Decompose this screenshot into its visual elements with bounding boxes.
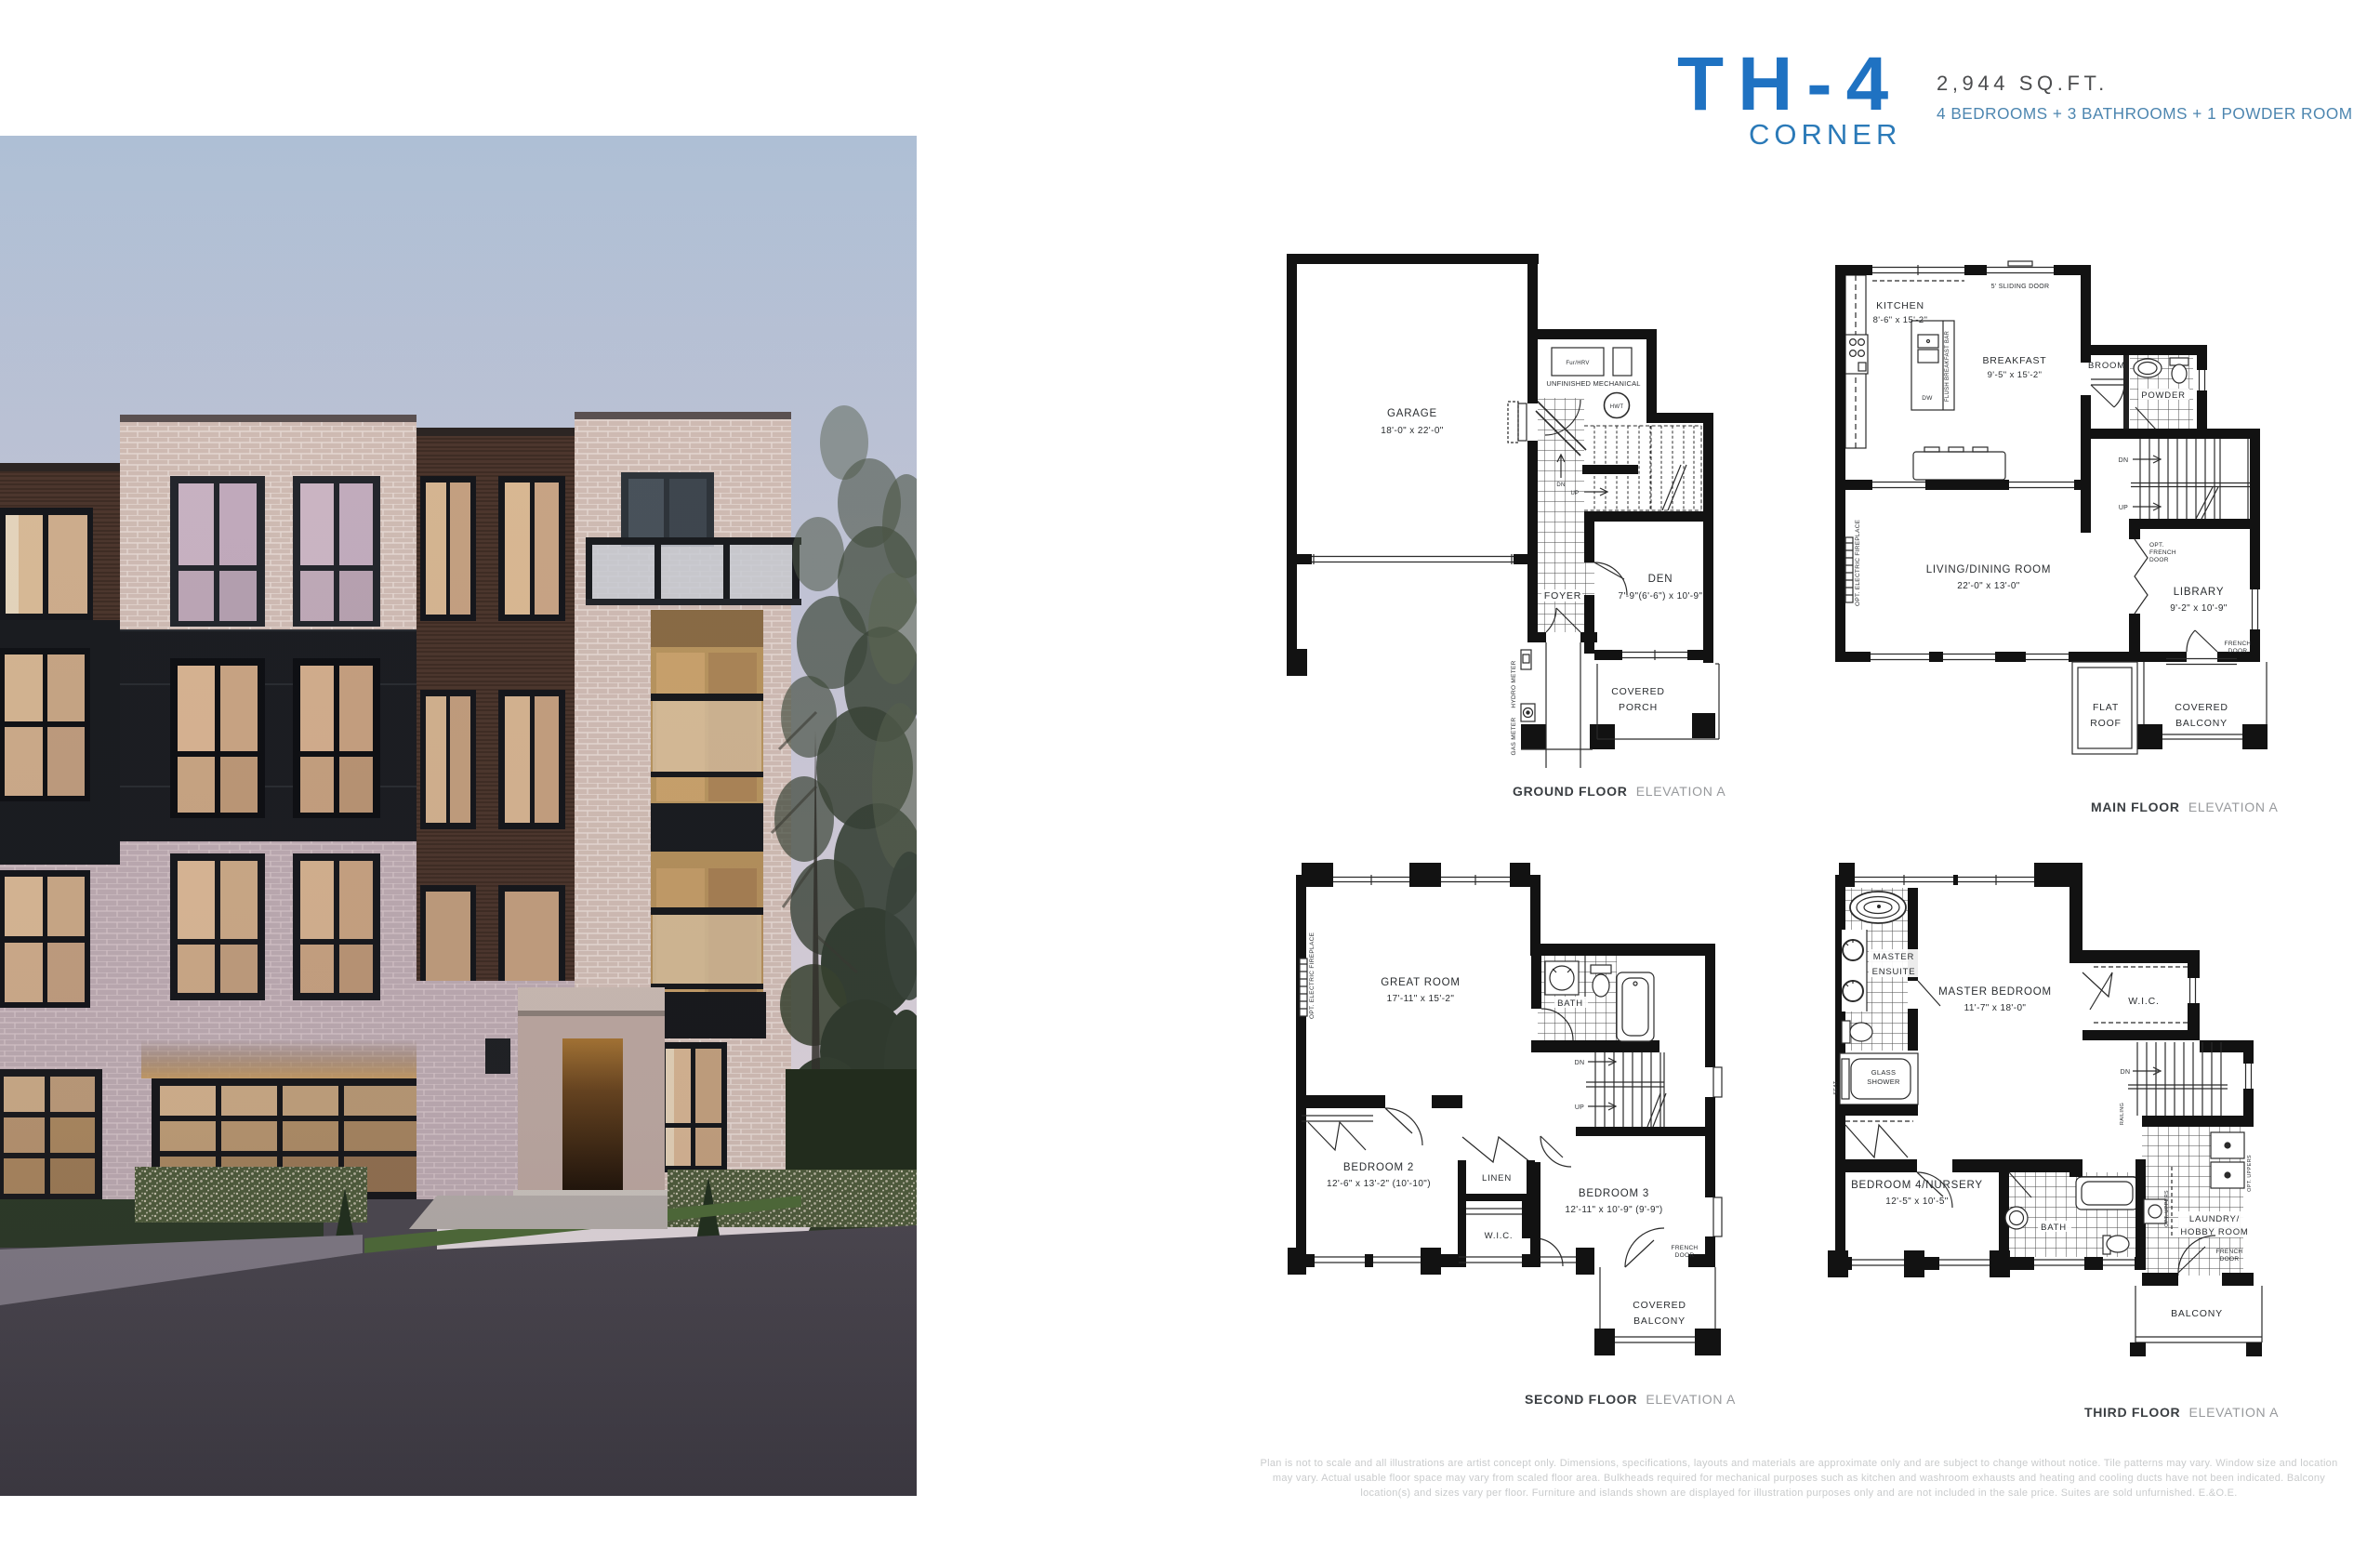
svg-text:MASTER: MASTER [1873, 952, 1914, 962]
svg-text:BALCONY: BALCONY [2175, 718, 2228, 729]
svg-text:BROOM: BROOM [2088, 361, 2125, 371]
svg-text:DOOR: DOOR [2228, 648, 2248, 654]
svg-text:DOOR: DOOR [1675, 1252, 1695, 1259]
svg-text:FRENCH: FRENCH [2225, 641, 2252, 647]
svg-text:OPT. UPPERS: OPT. UPPERS [2164, 1190, 2170, 1227]
svg-text:UP: UP [2119, 505, 2128, 511]
svg-text:UP: UP [1571, 491, 1580, 496]
svg-text:12'-11" x 10'-9" (9'-9"): 12'-11" x 10'-9" (9'-9") [1565, 1205, 1662, 1215]
svg-text:COVERED: COVERED [1633, 1300, 1686, 1311]
svg-text:GAS METER: GAS METER [1511, 718, 1517, 756]
svg-text:FLAT: FLAT [2093, 702, 2119, 713]
svg-text:DN: DN [1575, 1060, 1585, 1066]
svg-text:18'-0" x 22'-0": 18'-0" x 22'-0" [1381, 426, 1444, 436]
svg-text:DN: DN [1556, 483, 1565, 488]
svg-text:5' SLIDING DOOR: 5' SLIDING DOOR [1991, 284, 2050, 290]
svg-text:DEN: DEN [1648, 574, 1673, 585]
svg-text:DOOR: DOOR [2220, 1256, 2240, 1263]
svg-text:LIVING/DINING ROOM: LIVING/DINING ROOM [1926, 564, 2052, 575]
svg-text:FRENCH: FRENCH [2216, 1249, 2243, 1255]
svg-text:W.I.C.: W.I.C. [1485, 1231, 1514, 1241]
svg-text:ROOF: ROOF [2090, 718, 2122, 729]
svg-text:12'-5" x 10'-5": 12'-5" x 10'-5" [1885, 1197, 1949, 1207]
svg-text:PORCH: PORCH [1619, 702, 1658, 713]
svg-text:11'-7" x 18'-0": 11'-7" x 18'-0" [1964, 1003, 2027, 1013]
svg-text:9'-5" x 15'-2": 9'-5" x 15'-2" [1988, 370, 2043, 380]
svg-text:LINEN: LINEN [1482, 1173, 1512, 1183]
svg-text:UP: UP [1575, 1104, 1584, 1111]
svg-text:RAILING: RAILING [2120, 1103, 2125, 1125]
svg-text:COVERED: COVERED [1611, 686, 1665, 697]
svg-text:FRENCH: FRENCH [1672, 1245, 1699, 1251]
svg-text:7'-9"(6'-6") x 10'-9": 7'-9"(6'-6") x 10'-9" [1619, 591, 1703, 602]
svg-text:OPT.: OPT. [2149, 542, 2164, 549]
svg-text:SHOWER: SHOWER [1867, 1078, 1900, 1086]
svg-text:BEDROOM 4/NURSERY: BEDROOM 4/NURSERY [1851, 1180, 1983, 1191]
svg-text:BALCONY: BALCONY [2171, 1308, 2223, 1319]
svg-text:BEDROOM 3: BEDROOM 3 [1579, 1188, 1649, 1199]
svg-text:LAUNDRY/: LAUNDRY/ [2189, 1214, 2240, 1224]
svg-text:22'-0" x 13'-0": 22'-0" x 13'-0" [1957, 581, 2020, 591]
svg-text:FOYER: FOYER [1544, 590, 1581, 602]
svg-text:9'-2" x 10'-9": 9'-2" x 10'-9" [2170, 603, 2228, 614]
svg-text:FLUSH BREAKFAST BAR: FLUSH BREAKFAST BAR [1945, 330, 1950, 402]
svg-text:W.I.C.: W.I.C. [2128, 996, 2159, 1007]
svg-text:DW: DW [1922, 395, 1933, 402]
svg-text:BALCONY: BALCONY [1633, 1316, 1686, 1327]
svg-text:FRENCH: FRENCH [2149, 549, 2176, 556]
svg-text:ENSUITE: ENSUITE [1872, 967, 1916, 977]
svg-text:OPT. ELECTRIC FIREPLACE: OPT. ELECTRIC FIREPLACE [1309, 932, 1316, 1019]
svg-text:OPT. ELECTRIC FIREPLACE: OPT. ELECTRIC FIREPLACE [1855, 519, 1861, 606]
svg-text:8'-6" x 15'-2": 8'-6" x 15'-2" [1873, 315, 1928, 325]
svg-text:12'-6" x 13'-2" (10'-10"): 12'-6" x 13'-2" (10'-10") [1327, 1179, 1431, 1189]
svg-text:HWT: HWT [1610, 404, 1624, 410]
svg-text:MASTER BEDROOM: MASTER BEDROOM [1938, 986, 2052, 998]
svg-text:KITCHEN: KITCHEN [1876, 300, 1924, 311]
svg-text:BATH: BATH [1557, 998, 1583, 1009]
svg-text:BATH: BATH [2041, 1223, 2067, 1233]
svg-text:POWDER: POWDER [2141, 390, 2186, 401]
svg-text:DOOR: DOOR [2149, 557, 2169, 563]
svg-text:17'-11" x 15'-2": 17'-11" x 15'-2" [1387, 994, 1455, 1004]
svg-text:UNFINISHED MECHANICAL: UNFINISHED MECHANICAL [1546, 379, 1640, 388]
svg-text:SEAT: SEAT [1833, 1080, 1839, 1094]
svg-text:BEDROOM 2: BEDROOM 2 [1343, 1162, 1414, 1173]
svg-text:GREAT ROOM: GREAT ROOM [1381, 977, 1461, 988]
svg-text:LIBRARY: LIBRARY [2174, 587, 2225, 598]
svg-text:OPT. UPPERS: OPT. UPPERS [2247, 1155, 2253, 1192]
svg-text:HYDRO METER: HYDRO METER [1511, 660, 1517, 707]
svg-text:GARAGE: GARAGE [1387, 408, 1437, 419]
svg-text:Fur/HRV: Fur/HRV [1566, 361, 1589, 366]
svg-text:COVERED: COVERED [2175, 702, 2228, 713]
svg-text:BREAKFAST: BREAKFAST [1982, 355, 2046, 366]
svg-text:DN: DN [2121, 1069, 2131, 1076]
svg-text:GLASS: GLASS [1871, 1068, 1897, 1077]
svg-text:DN: DN [2119, 457, 2129, 464]
